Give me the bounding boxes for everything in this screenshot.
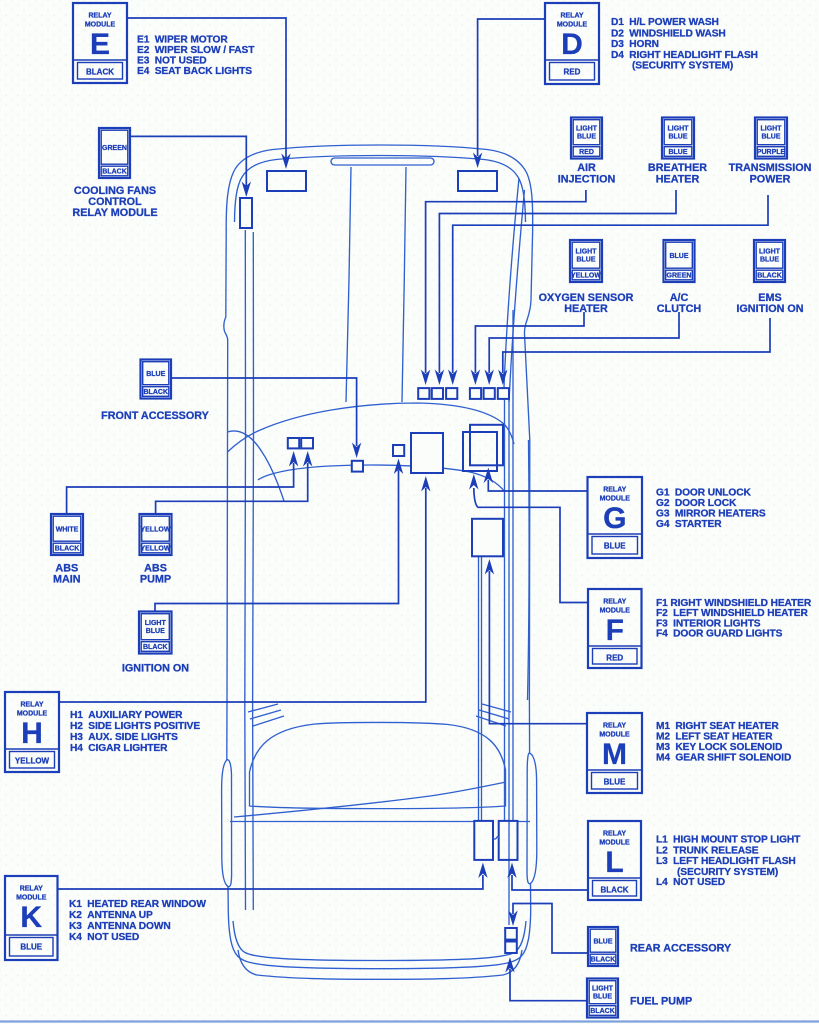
svg-text:K1 HEATED REAR WINDOW: K1 HEATED REAR WINDOW	[69, 899, 206, 910]
svg-text:YELLOW: YELLOW	[141, 545, 171, 552]
svg-text:D1 H/L POWER WASH: D1 H/L POWER WASH	[611, 17, 719, 28]
svg-text:BLUE: BLUE	[760, 257, 779, 264]
svg-text:BLACK: BLACK	[144, 389, 169, 396]
svg-text:FRONT ACCESSORY: FRONT ACCESSORY	[101, 410, 210, 422]
svg-text:BLUE: BLUE	[576, 257, 595, 264]
svg-text:M2 LEFT SEAT HEATER: M2 LEFT SEAT HEATER	[656, 732, 773, 743]
svg-text:E1 WIPER MOTOR: E1 WIPER MOTOR	[137, 34, 228, 45]
svg-text:BLUE: BLUE	[593, 939, 612, 946]
svg-text:RELAY MODULE: RELAY MODULE	[72, 207, 157, 219]
svg-text:E4 SEAT BACK LIGHTS: E4 SEAT BACK LIGHTS	[137, 66, 252, 77]
svg-text:WHITE: WHITE	[56, 527, 79, 534]
svg-text:PURPLE: PURPLE	[757, 149, 786, 156]
svg-text:BLACK: BLACK	[757, 272, 782, 279]
svg-text:GREEN: GREEN	[102, 145, 127, 152]
svg-text:FUEL PUMP: FUEL PUMP	[630, 996, 692, 1008]
svg-text:BLACK: BLACK	[143, 644, 168, 651]
svg-text:BREATHER: BREATHER	[648, 162, 707, 174]
svg-text:HEATER: HEATER	[564, 303, 608, 315]
svg-text:H2 SIDE LIGHTS POSITIVE: H2 SIDE LIGHTS POSITIVE	[70, 721, 200, 732]
svg-text:M3 KEY LOCK SOLENOID: M3 KEY LOCK SOLENOID	[656, 742, 782, 753]
svg-text:BLUE: BLUE	[669, 253, 688, 260]
svg-text:RELAY: RELAY	[20, 702, 43, 709]
svg-text:IGNITION ON: IGNITION ON	[736, 303, 803, 315]
svg-text:LIGHT: LIGHT	[761, 126, 783, 133]
svg-text:RED: RED	[564, 68, 581, 77]
svg-text:F: F	[606, 614, 624, 647]
svg-text:BLACK: BLACK	[591, 956, 616, 963]
svg-text:IGNITION ON: IGNITION ON	[122, 663, 189, 675]
svg-text:E: E	[90, 28, 110, 61]
svg-text:E3 NOT USED: E3 NOT USED	[137, 55, 207, 66]
svg-text:(SECURITY SYSTEM): (SECURITY SYSTEM)	[677, 867, 778, 878]
svg-text:BLUE: BLUE	[668, 134, 687, 141]
svg-text:F2 LEFT WINDSHIELD HEATER: F2 LEFT WINDSHIELD HEATER	[656, 608, 808, 619]
svg-text:BLUE: BLUE	[668, 149, 687, 156]
svg-text:LIGHT: LIGHT	[576, 249, 598, 256]
svg-text:YELLOW: YELLOW	[141, 527, 171, 534]
svg-text:LIGHT: LIGHT	[576, 126, 598, 133]
svg-text:F4 DOOR GUARD LIGHTS: F4 DOOR GUARD LIGHTS	[656, 629, 783, 640]
svg-text:RELAY: RELAY	[20, 886, 43, 893]
svg-text:YELLOW: YELLOW	[15, 757, 50, 766]
svg-text:BLACK: BLACK	[601, 886, 629, 895]
svg-text:BLACK: BLACK	[590, 1008, 615, 1015]
svg-text:M: M	[602, 738, 627, 771]
svg-text:K2 ANTENNA UP: K2 ANTENNA UP	[69, 910, 153, 921]
svg-text:LIGHT: LIGHT	[145, 620, 167, 627]
svg-text:AIR: AIR	[577, 162, 596, 174]
svg-text:BLACK: BLACK	[86, 68, 114, 77]
svg-text:GREEN: GREEN	[667, 272, 692, 279]
svg-text:INJECTION: INJECTION	[558, 174, 616, 186]
svg-text:BLUE: BLUE	[604, 542, 626, 551]
svg-text:BLUE: BLUE	[577, 134, 596, 141]
svg-text:D3 HORN: D3 HORN	[611, 39, 659, 50]
svg-text:MAIN: MAIN	[53, 574, 81, 586]
svg-text:K3 ANTENNA DOWN: K3 ANTENNA DOWN	[69, 921, 171, 932]
svg-text:LIGHT: LIGHT	[592, 986, 614, 993]
svg-text:G2 DOOR LOCK: G2 DOOR LOCK	[656, 498, 737, 509]
svg-text:L1 HIGH MOUNT STOP LIGHT: L1 HIGH MOUNT STOP LIGHT	[656, 835, 801, 846]
svg-text:RELAY: RELAY	[560, 13, 583, 20]
svg-text:L3 LEFT HEADLIGHT FLASH: L3 LEFT HEADLIGHT FLASH	[656, 856, 796, 867]
svg-text:L4 NOT USED: L4 NOT USED	[656, 877, 725, 888]
svg-text:RELAY: RELAY	[603, 831, 626, 838]
svg-text:G1 DOOR UNLOCK: G1 DOOR UNLOCK	[656, 487, 751, 498]
svg-text:HEATER: HEATER	[656, 174, 700, 186]
svg-text:BLUE: BLUE	[604, 778, 626, 787]
svg-text:M4 GEAR SHIFT SOLENOID: M4 GEAR SHIFT SOLENOID	[656, 753, 791, 764]
svg-text:L: L	[605, 846, 623, 879]
svg-text:BLUE: BLUE	[593, 994, 612, 1001]
svg-text:K: K	[20, 901, 42, 934]
svg-text:YELLOW: YELLOW	[571, 272, 601, 279]
svg-text:BLUE: BLUE	[761, 134, 780, 141]
svg-text:G3 MIRROR HEATERS: G3 MIRROR HEATERS	[656, 509, 766, 520]
svg-text:LIGHT: LIGHT	[759, 249, 781, 256]
svg-text:RELAY: RELAY	[603, 599, 626, 606]
svg-text:CLUTCH: CLUTCH	[657, 303, 702, 315]
svg-text:H3 AUX. SIDE LIGHTS: H3 AUX. SIDE LIGHTS	[70, 732, 178, 743]
svg-text:BLUE: BLUE	[20, 943, 42, 952]
svg-text:G4 STARTER: G4 STARTER	[656, 519, 722, 530]
svg-text:G: G	[603, 502, 626, 535]
svg-text:BLACK: BLACK	[55, 545, 80, 552]
svg-text:LIGHT: LIGHT	[668, 126, 690, 133]
svg-text:RED: RED	[579, 149, 594, 156]
svg-text:D2 WINDSHIELD WASH: D2 WINDSHIELD WASH	[611, 28, 726, 39]
svg-text:K4 NOT USED: K4 NOT USED	[69, 932, 139, 943]
svg-text:E2 WIPER SLOW / FAST: E2 WIPER SLOW / FAST	[137, 45, 255, 56]
svg-text:POWER: POWER	[750, 174, 791, 186]
svg-text:(SECURITY SYSTEM): (SECURITY SYSTEM)	[632, 60, 733, 71]
svg-text:H1 AUXILIARY POWER: H1 AUXILIARY POWER	[70, 710, 183, 721]
svg-text:PUMP: PUMP	[140, 574, 171, 586]
svg-text:BLUE: BLUE	[146, 628, 165, 635]
svg-text:TRANSMISSION: TRANSMISSION	[729, 162, 812, 174]
svg-text:D: D	[561, 28, 583, 61]
svg-text:RED: RED	[606, 654, 623, 663]
svg-text:RELAY: RELAY	[603, 487, 626, 494]
svg-text:RELAY: RELAY	[603, 723, 626, 730]
svg-text:RELAY: RELAY	[88, 13, 111, 20]
svg-text:H: H	[21, 717, 43, 750]
svg-text:BLACK: BLACK	[102, 168, 127, 175]
svg-text:BLUE: BLUE	[146, 371, 165, 378]
svg-text:L2 TRUNK RELEASE: L2 TRUNK RELEASE	[656, 846, 759, 857]
svg-text:REAR ACCESSORY: REAR ACCESSORY	[630, 942, 732, 954]
svg-text:M1 RIGHT SEAT HEATER: M1 RIGHT SEAT HEATER	[656, 721, 779, 732]
svg-text:H4 CIGAR LIGHTER: H4 CIGAR LIGHTER	[70, 743, 168, 754]
svg-text:D4 RIGHT HEADLIGHT FLASH: D4 RIGHT HEADLIGHT FLASH	[611, 50, 758, 61]
